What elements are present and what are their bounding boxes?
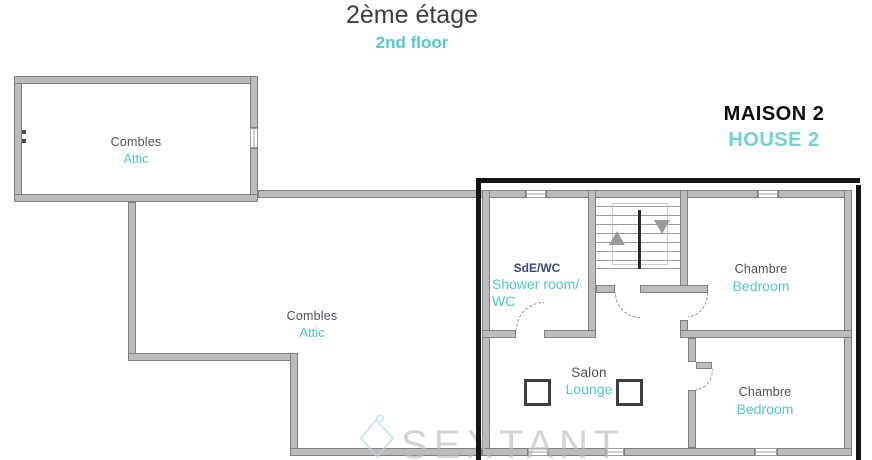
room-label-shower-wc: SdE/WC Shower room/ WC: [492, 261, 582, 310]
attic-small-english: Attic: [111, 151, 162, 167]
wall-attic-large-step-west: [290, 353, 298, 456]
room-label-attic-small: Combles Attic: [111, 135, 162, 167]
floor-plan-canvas: 2ème étage 2nd floor MAISON 2 HOUSE 2 SE…: [0, 0, 872, 460]
house-frame-left: [476, 178, 481, 460]
stairs-down-icon: [654, 220, 670, 234]
vent-mark-upper: [22, 130, 26, 134]
wall-stair-landing-2: [640, 285, 708, 293]
wall-attic-large-west: [128, 202, 136, 361]
bedroom-top-english: Bedroom: [733, 278, 790, 294]
door-arc-bedroom-bottom: [696, 369, 713, 390]
bedroom-bottom-french: Chambre: [737, 385, 794, 400]
door-arc-bedroom-top: [688, 293, 708, 317]
watermark-text: SEXTANT: [401, 424, 625, 460]
wall-attic-small-north: [14, 76, 258, 84]
wall-shower-south-2: [544, 330, 596, 338]
attic-large-french: Combles: [287, 309, 338, 324]
wall-attic-large-step-south: [128, 353, 298, 361]
sextant-logo-icon: [356, 413, 398, 460]
window-attic-small-east: [250, 128, 258, 148]
floor-title-french: 2ème étage: [346, 1, 478, 30]
window-house-north-2: [758, 190, 778, 198]
attic-large-english: Attic: [287, 325, 338, 341]
wall-house-north-3: [778, 190, 852, 198]
wall-attic-small-east-upper: [250, 76, 258, 128]
floor-title-english: 2nd floor: [346, 33, 478, 53]
wall-house-south-4: [777, 448, 852, 456]
room-label-bedroom-top: Chambre Bedroom: [733, 262, 790, 294]
bedroom-bottom-english: Bedroom: [737, 401, 794, 417]
house-label: MAISON 2 HOUSE 2: [724, 103, 825, 152]
vent-mark-lower: [22, 139, 26, 143]
skylight-left: [524, 379, 551, 406]
window-house-north-1: [526, 190, 546, 198]
lounge-french: Salon: [566, 365, 613, 380]
house-frame-right: [856, 185, 861, 460]
wall-house-east: [844, 190, 852, 456]
house-frame-top: [476, 178, 860, 183]
door-arc-landing: [615, 293, 640, 318]
window-house-south-3: [755, 448, 777, 456]
room-label-lounge: Salon Lounge: [566, 365, 613, 397]
staircase-divider: [638, 210, 641, 269]
skylight-right: [616, 379, 643, 406]
wall-attic-small-south: [14, 194, 258, 202]
wall-shower-east: [588, 190, 596, 338]
wall-house-north-2: [546, 190, 758, 198]
shower-wc-english-line2: WC: [492, 293, 582, 310]
floor-title: 2ème étage 2nd floor: [346, 1, 478, 53]
wall-stairwell-east: [680, 190, 688, 293]
room-label-attic-large: Combles Attic: [287, 309, 338, 341]
bedroom-top-french: Chambre: [733, 262, 790, 277]
house-label-english: HOUSE 2: [724, 129, 825, 152]
wall-house-south-3: [624, 448, 755, 456]
door-leaf-bedroom-bottom: [696, 362, 712, 369]
shower-wc-french: SdE/WC: [492, 261, 582, 276]
house-label-french: MAISON 2: [724, 103, 825, 126]
lounge-english: Lounge: [566, 381, 613, 397]
stairs-up-icon: [609, 231, 625, 245]
wall-shower-south-1: [482, 330, 516, 338]
attic-small-french: Combles: [111, 135, 162, 150]
wall-bedroom-top-south: [680, 330, 852, 338]
wall-attic-small-west: [14, 76, 22, 202]
wall-bedroom-bottom-west-upper: [688, 338, 696, 362]
watermark: SEXTANT: [356, 413, 625, 460]
shower-wc-english-line1: Shower room/: [492, 276, 582, 293]
wall-stair-landing-1: [596, 285, 615, 293]
wall-bedroom-bottom-west-lower: [688, 390, 696, 448]
room-label-bedroom-bottom: Chambre Bedroom: [737, 385, 794, 417]
